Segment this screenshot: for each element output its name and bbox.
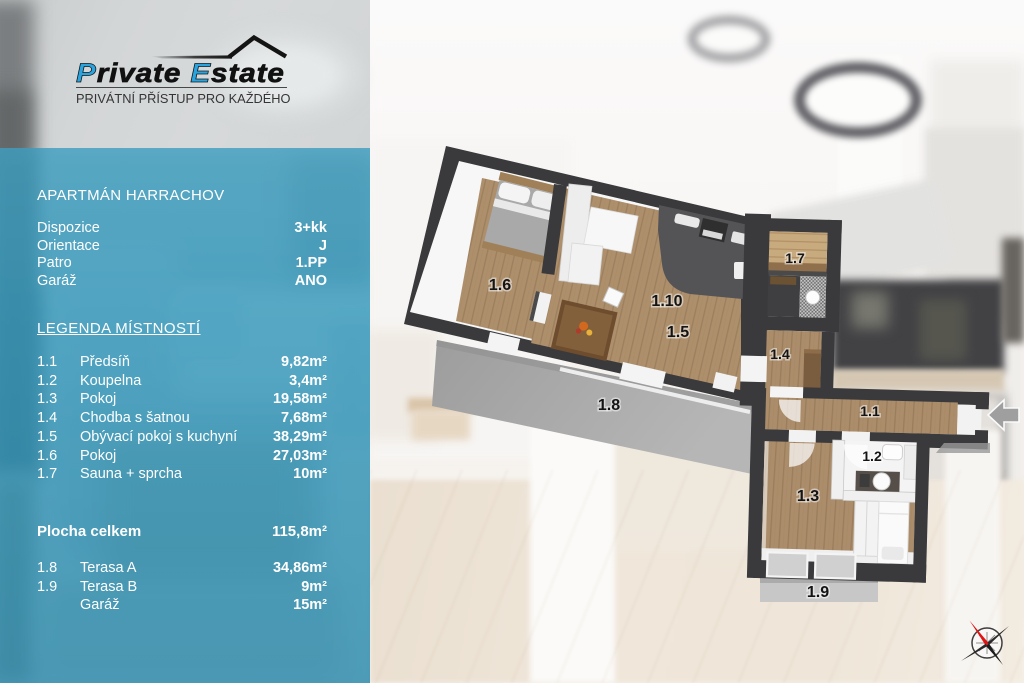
svg-text:1.8: 1.8: [598, 397, 620, 414]
svg-text:1.6: 1.6: [489, 277, 511, 294]
svg-text:1.5: 1.5: [667, 324, 689, 341]
svg-text:1.3: 1.3: [797, 488, 819, 505]
svg-text:1.2: 1.2: [862, 448, 882, 464]
svg-text:1.9: 1.9: [807, 584, 829, 601]
svg-text:1.7: 1.7: [785, 250, 805, 266]
svg-text:1.4: 1.4: [770, 346, 790, 362]
svg-text:1.10: 1.10: [651, 293, 682, 310]
svg-text:1.1: 1.1: [860, 403, 880, 419]
